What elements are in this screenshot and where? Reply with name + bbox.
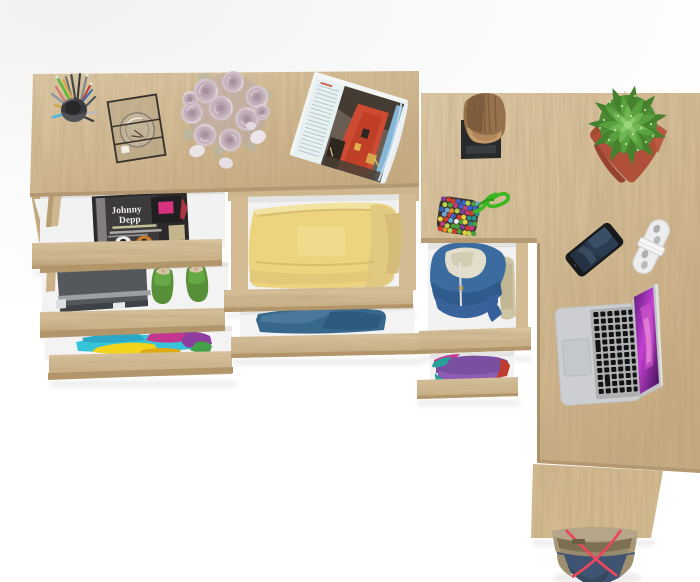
svg-text:Depp: Depp bbox=[119, 215, 141, 226]
